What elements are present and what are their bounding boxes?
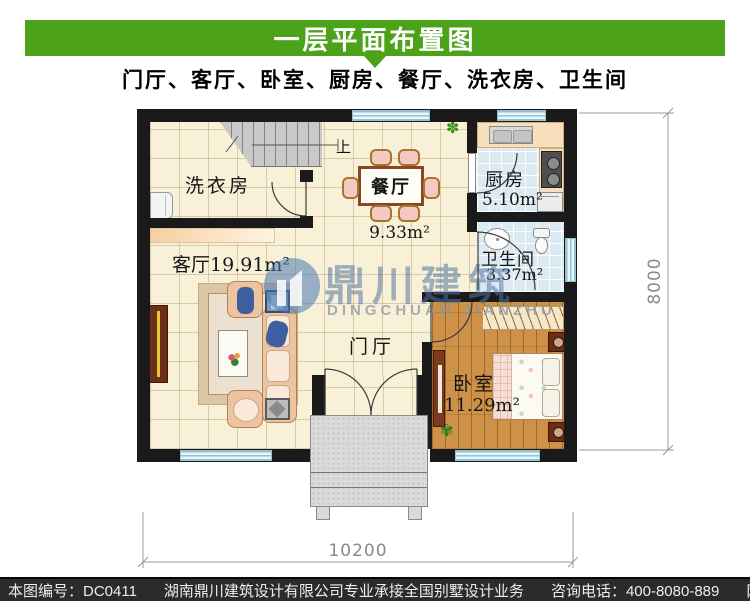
wall-right	[564, 109, 577, 462]
flower-vase	[226, 351, 242, 367]
dining-table: 餐厅	[358, 166, 424, 206]
room-label-bedroom: 卧室	[453, 369, 495, 396]
room-label-kitchen: 厨房	[485, 166, 525, 192]
area-label-bedroom: 11.29m²	[444, 395, 520, 416]
dim-ticks-right	[663, 108, 673, 455]
entrance-recess-floor	[325, 375, 417, 417]
window-bedroom-bottom	[455, 450, 540, 461]
wall-kitchen-upper	[467, 122, 477, 153]
dim-ticks-bottom	[138, 557, 578, 567]
stairs-bottom-edge	[251, 166, 322, 167]
kitchen-sink	[489, 126, 533, 144]
fridge-handle	[541, 196, 559, 197]
square-table-inlay	[269, 401, 286, 418]
washing-machine	[150, 192, 173, 219]
footer-phone: 咨询电话：400-8080-889	[551, 580, 719, 601]
dining-chair	[398, 205, 420, 222]
kitchen-door-leaf	[468, 153, 476, 193]
room-label-laundry: 洗衣房	[185, 171, 251, 198]
porch-foot	[408, 506, 422, 520]
burner	[547, 157, 560, 170]
aquarium-inner	[271, 295, 283, 309]
floor-plan: 餐厅	[137, 109, 577, 462]
sofa-single-top	[227, 281, 263, 318]
wall-bath-left	[467, 222, 477, 232]
stove	[541, 151, 562, 188]
sofa-cushion	[266, 350, 290, 382]
area-label-bath: 3.37m²	[486, 265, 543, 284]
wall-left	[137, 109, 150, 462]
stairs-up-label: 上	[336, 136, 351, 157]
area-label-dining: 9.33m²	[362, 223, 437, 243]
porch-foot	[316, 506, 330, 520]
sofa-pillow	[233, 398, 259, 422]
area-label-kitchen: 5.10m²	[482, 190, 543, 210]
dining-chair	[370, 149, 392, 166]
dim-text-width: 10200	[328, 541, 387, 561]
sofa-single-bottom	[227, 390, 263, 428]
floor-plan-page: 一层平面布置图 门厅、客厅、卧室、厨房、餐厅、洗衣房、卫生间	[0, 0, 750, 601]
pillow	[542, 358, 560, 386]
side-table-square	[265, 398, 290, 420]
dim-extensions-right	[579, 113, 674, 450]
footer-plan-number: 本图编号：DC0411	[8, 580, 137, 601]
footer-website: 网址：www.bstzcs.com	[746, 580, 750, 601]
washer-door-line	[165, 195, 166, 216]
coffee-table	[218, 330, 248, 377]
potted-plant: ✽	[446, 121, 459, 137]
room-label-living: 客厅19.91m²	[172, 250, 290, 277]
wall-bath-bedroom	[422, 292, 577, 302]
window-bathroom-right	[565, 238, 576, 282]
sink-basin	[513, 130, 532, 143]
wall-laundry	[150, 218, 300, 228]
room-label-dining: 餐厅	[371, 173, 411, 199]
footer-company: 湖南鼎川建筑设计有限公司专业承接全国别墅设计业务	[164, 580, 524, 601]
bedroom-tv	[438, 365, 442, 413]
dim-extensions-bottom	[143, 512, 573, 568]
page-title-bar: 一层平面布置图	[25, 20, 725, 56]
door-jamb	[300, 216, 313, 228]
door-jamb	[300, 170, 313, 182]
window-kitchen-top	[497, 110, 546, 121]
pillow	[542, 389, 560, 417]
room-label-foyer: 门厅	[349, 332, 395, 359]
tv-cabinet	[148, 305, 168, 383]
potted-plant: ✾	[440, 424, 453, 440]
dining-chair	[423, 177, 440, 199]
wardrobe	[482, 306, 564, 330]
toilet-bowl	[535, 237, 548, 254]
page-title: 一层平面布置图	[273, 20, 476, 57]
tv-cabinet-inlay	[157, 311, 160, 377]
burner	[547, 173, 560, 186]
footer-bar: 本图编号：DC0411 湖南鼎川建筑设计有限公司专业承接全国别墅设计业务 咨询电…	[0, 577, 750, 601]
sink-drain	[496, 238, 499, 241]
sink-basin	[493, 130, 512, 143]
window-living-bottom	[180, 450, 272, 461]
console-cabinet	[150, 228, 275, 243]
dim-text-height: 8000	[645, 257, 665, 304]
room-list-subtitle: 门厅、客厅、卧室、厨房、餐厅、洗衣房、卫生间	[0, 64, 750, 94]
wall-kitchen-bath	[467, 212, 577, 222]
living-area-text: 19.91m²	[210, 254, 290, 276]
porch-step-line	[311, 472, 427, 473]
dining-chair	[398, 149, 420, 166]
side-table-aquarium	[265, 290, 290, 313]
dining-chair	[370, 205, 392, 222]
living-label-text: 客厅	[172, 255, 210, 276]
person-figure	[237, 287, 254, 314]
entrance-porch-steps	[310, 415, 428, 507]
dining-chair	[342, 177, 359, 199]
window-dining-top	[352, 110, 430, 121]
porch-step-line	[311, 487, 427, 488]
